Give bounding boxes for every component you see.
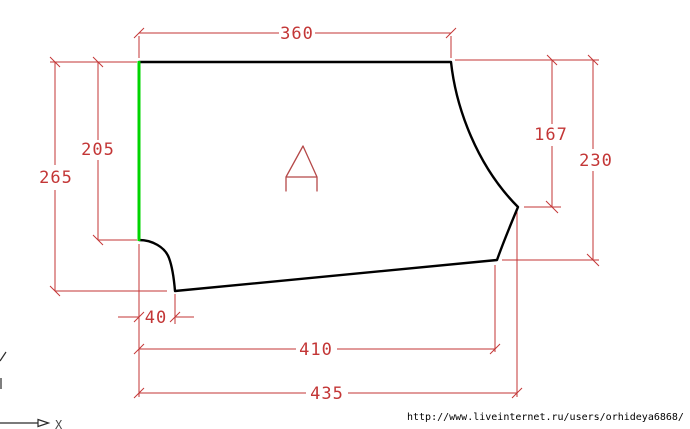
dimension-notch-width: 40 xyxy=(118,308,194,328)
pattern-drawing: 360 265 205 167 xyxy=(0,0,690,429)
dimension-bottom-outer-width: 435 xyxy=(134,384,522,404)
pattern-outline xyxy=(139,62,518,291)
dim-label-left-inner: 205 xyxy=(81,140,115,160)
dim-label-right-inner: 167 xyxy=(534,125,568,145)
part-label: A xyxy=(286,146,317,191)
pattern-drawing-canvas: 360 265 205 167 xyxy=(0,0,690,429)
dimension-right-inner-height: 167 xyxy=(524,55,568,213)
dimension-left-outer-height: 265 xyxy=(39,57,167,296)
axis-indicator: X xyxy=(0,352,63,429)
x-axis-label: X xyxy=(55,418,63,429)
dimension-bottom-inner-width: 410 xyxy=(134,340,500,360)
dimension-right-outer-height: 230 xyxy=(502,55,613,266)
dim-label-left-outer: 265 xyxy=(39,168,73,188)
dim-label-bottom-inner: 410 xyxy=(299,340,333,360)
dim-label-top-width: 360 xyxy=(280,24,314,44)
watermark-url: http://www.liveinternet.ru/users/orhidey… xyxy=(407,411,684,424)
y-axis-fragment xyxy=(0,352,6,389)
dim-label-bottom-outer: 435 xyxy=(310,384,344,404)
dimension-left-inner-height: 205 xyxy=(81,57,137,245)
dimension-top-width: 360 xyxy=(134,24,456,58)
x-axis-arrowhead-icon xyxy=(38,420,49,427)
dim-label-right-outer: 230 xyxy=(579,151,613,171)
dim-label-notch: 40 xyxy=(145,308,167,328)
